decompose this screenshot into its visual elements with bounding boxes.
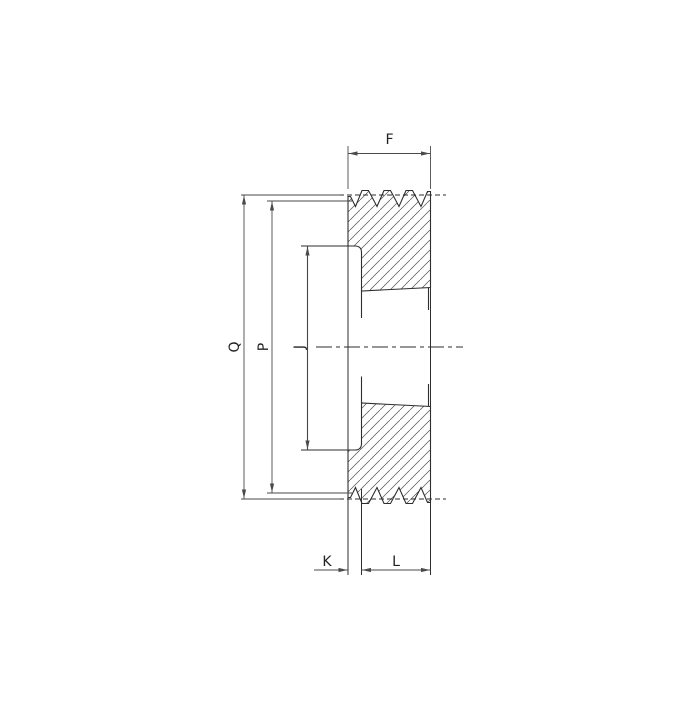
dim-f xyxy=(348,146,431,189)
arrow-q-top xyxy=(242,196,246,205)
arrow-j-top xyxy=(305,247,309,256)
dim-label-j: J xyxy=(292,345,308,350)
pulley-section-drawing: F Q P J K L xyxy=(0,0,700,700)
arrow-p-bottom xyxy=(270,484,274,493)
arrow-k xyxy=(339,568,348,572)
arrow-l-right xyxy=(421,568,430,572)
arrow-f-left xyxy=(349,151,358,155)
object-lines xyxy=(301,191,463,576)
arrow-l-left xyxy=(362,568,371,572)
dim-label-f: F xyxy=(385,132,393,148)
drawing-canvas: F Q P J K L xyxy=(0,0,700,700)
dim-label-p: P xyxy=(256,343,272,351)
dim-label-q: Q xyxy=(227,341,243,352)
arrow-j-bottom xyxy=(305,441,309,450)
rim-section-bottom xyxy=(348,403,431,504)
dim-label-k: K xyxy=(322,554,332,570)
dim-label-l: L xyxy=(392,554,400,570)
rim-section-top xyxy=(348,191,431,292)
taper-bush-outline xyxy=(301,246,355,450)
arrow-p-top xyxy=(270,202,274,211)
arrow-q-bottom xyxy=(242,490,246,499)
arrow-f-right xyxy=(421,151,430,155)
dimension-labels: F Q P J K L xyxy=(227,132,400,570)
